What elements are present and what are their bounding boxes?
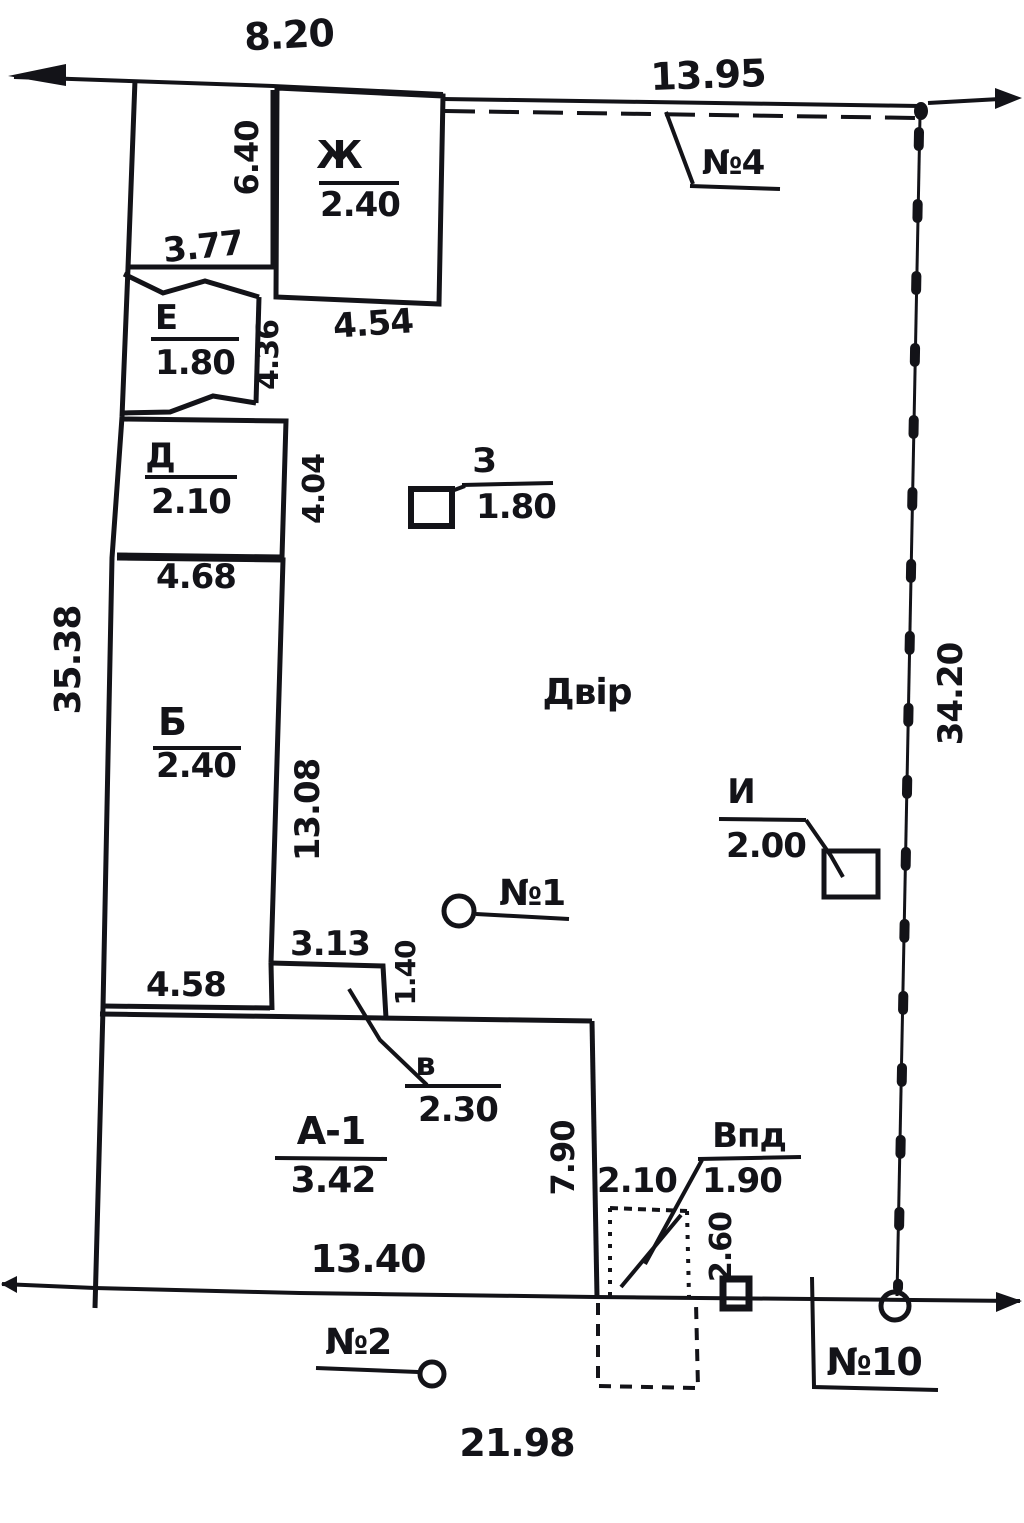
point-n10-label: №10 [826, 1343, 922, 1381]
building-e-top-zigzag [124, 274, 259, 297]
dim-top-fence-width: 13.95 [650, 54, 766, 96]
dim-left-side: 35.38 [51, 606, 87, 715]
structure-z-square [411, 489, 452, 526]
dim-enclosure-height: 6.40 [231, 121, 263, 196]
structure-vpd-label-bar [698, 1157, 801, 1159]
label-b-letter: Б [158, 703, 186, 741]
label-i-letter: И [727, 775, 754, 809]
porch-v-left-edge [271, 963, 272, 1010]
dim-b-bottom: 4.58 [146, 968, 226, 1002]
dim-porch-width: 3.13 [290, 927, 370, 961]
structure-i-label-bar [719, 819, 806, 820]
label-z-letter: З [472, 444, 495, 478]
label-a1-letter: А-1 [297, 1112, 366, 1150]
label-e-letter: Е [155, 301, 177, 335]
label-i-value: 2.00 [726, 829, 806, 863]
point-n10-circle [881, 1292, 909, 1320]
point-n2-underline [316, 1368, 418, 1372]
boundary-left-line [95, 80, 135, 1308]
a1-label-bar [275, 1158, 387, 1159]
boundary-top-right-line [928, 99, 1000, 103]
porch-v-outline [271, 963, 386, 1018]
fence-double-line-lower [445, 111, 918, 118]
building-b-bottom-edge [103, 1006, 270, 1008]
dim-d-right: 4.04 [300, 454, 330, 524]
plan-drawing [0, 0, 1024, 1523]
point-n2-circle [420, 1362, 444, 1386]
point-n2-label: №2 [325, 1325, 391, 1361]
point-n1-circle [444, 896, 474, 926]
dim-vpd-width: 2.10 [597, 1164, 677, 1198]
house-a1-right-edge [592, 1021, 597, 1297]
point-n1-label: №1 [499, 876, 565, 912]
structure-z-label-bar [462, 483, 553, 485]
arrow-bottom-right [996, 1292, 1022, 1312]
dim-enclosure-bottom: 3.77 [161, 226, 244, 268]
label-zh-letter: Ж [316, 136, 362, 174]
building-e-bottom-zigzag [121, 396, 256, 413]
point-n4-leader [666, 112, 693, 184]
dim-vpd-height: 2.60 [707, 1212, 737, 1282]
arrow-top-right [995, 88, 1022, 109]
label-v-value: 2.30 [418, 1093, 498, 1127]
label-z-value: 1.80 [476, 490, 556, 524]
label-e-value: 1.80 [155, 346, 235, 380]
fence-double-line-upper [443, 99, 920, 106]
dim-b-right: 13.08 [291, 759, 325, 862]
dim-house-bottom: 13.40 [310, 1240, 425, 1278]
dim-bottom-total: 21.98 [459, 1424, 574, 1462]
dim-e-right: 4.36 [254, 320, 284, 390]
label-vpd-letter: Впд [712, 1119, 786, 1153]
house-a1-top-edge [100, 1014, 592, 1021]
label-d-letter: Д [145, 439, 174, 473]
dim-right-side: 34.20 [934, 643, 968, 746]
arrow-top-left [8, 64, 66, 86]
label-vpd-value: 1.90 [702, 1164, 782, 1198]
structure-vpd-right-edge [687, 1211, 689, 1297]
label-d-value: 2.10 [151, 485, 231, 519]
point-n4-label: №4 [702, 146, 765, 180]
dim-top-width: 8.20 [243, 14, 335, 57]
dim-d-bottom: 4.68 [156, 560, 236, 594]
boundary-bottom-line [2, 1284, 1020, 1301]
arrow-bottom-left [1, 1276, 17, 1293]
dim-porch-height: 1.40 [392, 940, 420, 1005]
label-a1-value: 3.42 [291, 1163, 376, 1199]
point-n4-underline [690, 186, 780, 189]
dim-house-right: 7.90 [547, 1121, 579, 1196]
dashed-square [598, 1303, 698, 1388]
label-v-letter: в [415, 1048, 434, 1080]
label-b-value: 2.40 [156, 749, 236, 783]
yard-label: Двір [543, 675, 632, 711]
site-plan-scan: 8.20 13.95 3.77 4.54 4.68 4.58 3.13 13.4… [0, 0, 1024, 1523]
dim-zh-bottom: 4.54 [332, 304, 414, 343]
label-zh-value: 2.40 [320, 188, 400, 222]
point-n1-underline [476, 914, 569, 919]
bottom-square-marker [723, 1279, 749, 1308]
